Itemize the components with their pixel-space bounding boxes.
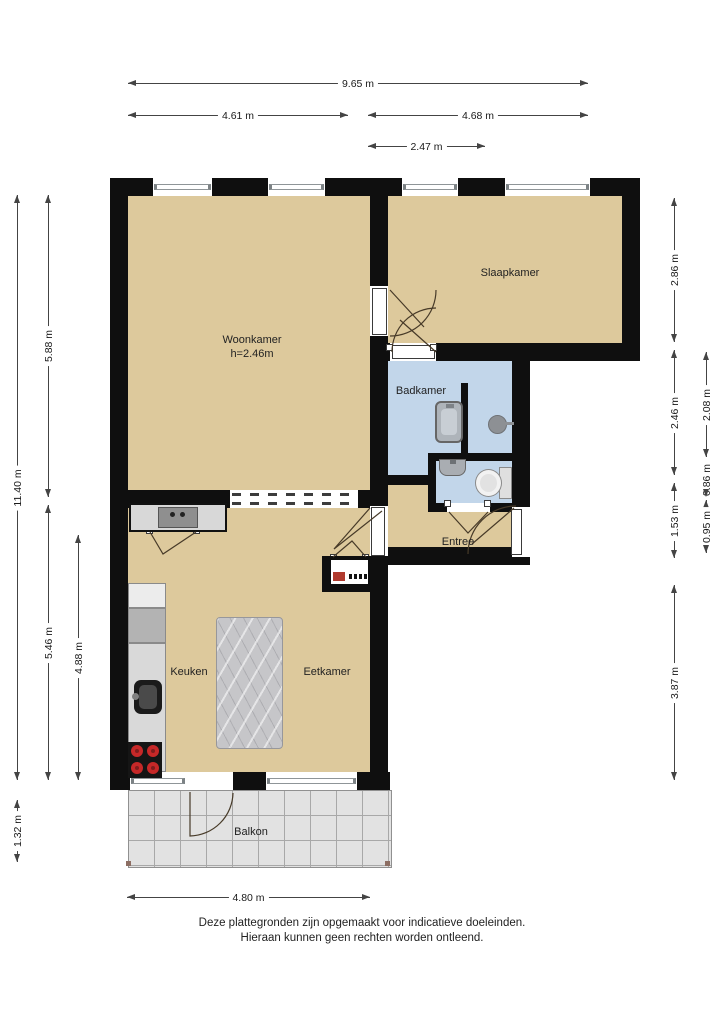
left-wall <box>110 178 128 790</box>
shower-head-icon <box>488 414 514 434</box>
dimension-right-2: 2.46 m <box>674 350 675 475</box>
meter-cupboard <box>322 556 388 592</box>
dimension-left-inner: 4.88 m <box>78 535 79 780</box>
wc-washbasin-icon <box>439 459 466 476</box>
dimension-left-balcony: 1.32 m <box>17 800 18 862</box>
cupboard-appliance-icon <box>158 507 198 528</box>
balcony-corner-mark <box>126 861 131 866</box>
entree-label: Entree <box>442 536 474 548</box>
balkon-label: Balkon <box>234 826 268 838</box>
keuken-label: Keuken <box>170 666 207 678</box>
window <box>268 178 325 196</box>
disclaimer-line-2: Hieraan kunnen geen rechten worden ontle… <box>0 931 724 946</box>
right-wall-upper <box>622 178 640 361</box>
dimension-right-6: 0.95 m <box>706 500 707 553</box>
washbasin-icon <box>435 401 463 443</box>
eetkamer-door-leaf <box>371 507 385 556</box>
badkamer-label: Badkamer <box>396 385 446 397</box>
dimension-right-3: 2.08 m <box>706 352 707 457</box>
kitchen-cabinet-top <box>128 583 166 608</box>
woonkamer-height-label: h=2.46m <box>230 348 273 360</box>
woonkamer-right-wall-lower <box>370 336 388 506</box>
kitchen-appliance <box>128 608 166 643</box>
wall-cupboard-counter <box>129 503 227 532</box>
dimension-right-1: 2.86 m <box>674 198 675 342</box>
window <box>402 178 458 196</box>
window <box>266 772 357 790</box>
dimension-left-upper: 5.88 m <box>48 195 49 497</box>
dimension-left-lower: 5.46 m <box>48 505 49 780</box>
slaapkamer-door-leaf <box>372 288 387 335</box>
dimension-left-total: 11.40 m <box>17 195 18 780</box>
hinge <box>444 500 451 507</box>
open-passage <box>230 490 358 508</box>
dimension-top-left: 4.61 m <box>128 115 348 116</box>
dimension-bottom: 4.80 m <box>127 897 370 898</box>
entree-bottom-wall <box>388 547 530 565</box>
hinge <box>430 344 437 351</box>
eetkamer-label: Eetkamer <box>303 666 350 678</box>
kitchen-sink-icon <box>134 680 162 714</box>
badkamer-door-leaf <box>392 345 435 359</box>
floorplan-canvas: Woonkamer h=2.46m Slaapkamer Badkamer En… <box>0 0 724 1024</box>
woonkamer-right-wall-upper <box>370 196 388 286</box>
slaapkamer-label: Slaapkamer <box>481 267 540 279</box>
disclaimer: Deze plattegronden zijn opgemaakt voor i… <box>0 916 724 946</box>
dimension-right-4: 0.86 m <box>706 462 707 497</box>
woonkamer-keuken-wall-right <box>358 490 370 508</box>
cooktop-icon <box>128 742 162 778</box>
toilet-icon <box>475 466 513 500</box>
balcony-corner-mark <box>385 861 390 866</box>
hinge <box>386 344 393 351</box>
window <box>505 178 590 196</box>
woonkamer-label: Woonkamer <box>222 334 281 346</box>
dimension-top-right: 4.68 m <box>368 115 588 116</box>
dimension-right-7: 3.87 m <box>674 585 675 780</box>
dimension-right-5: 1.53 m <box>674 483 675 558</box>
kitchen-island <box>216 617 283 749</box>
hinge <box>484 500 491 507</box>
dimension-top-total: 9.65 m <box>128 83 588 84</box>
electric-meter-icon <box>333 572 345 581</box>
dimension-top-inner: 2.47 m <box>368 146 485 147</box>
window <box>153 178 212 196</box>
disclaimer-line-1: Deze plattegronden zijn opgemaakt voor i… <box>0 916 724 931</box>
step-wall <box>530 343 640 361</box>
front-door-leaf <box>511 509 522 555</box>
balkon-door-opening <box>186 772 233 790</box>
